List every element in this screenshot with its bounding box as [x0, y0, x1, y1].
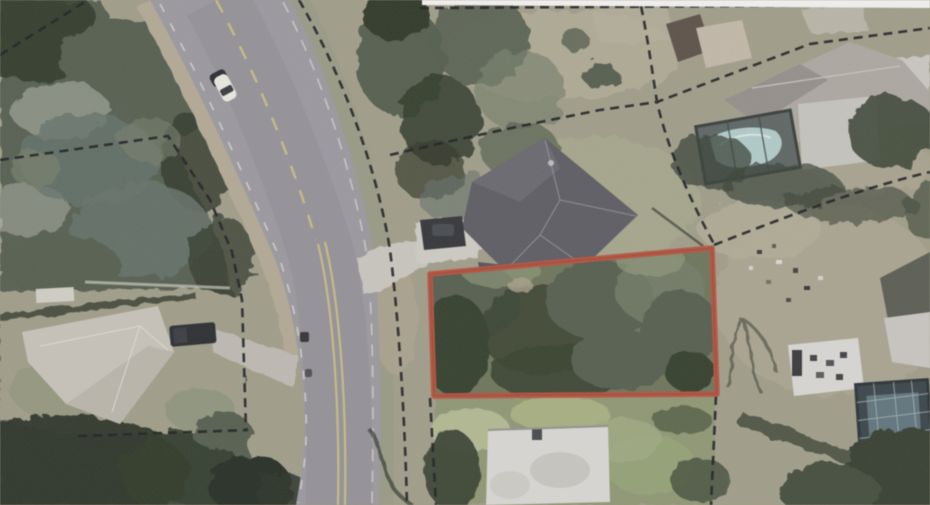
aerial-photo-svg — [0, 0, 930, 505]
aerial-parcel-photo — [0, 0, 930, 505]
photo-grain — [0, 0, 930, 505]
